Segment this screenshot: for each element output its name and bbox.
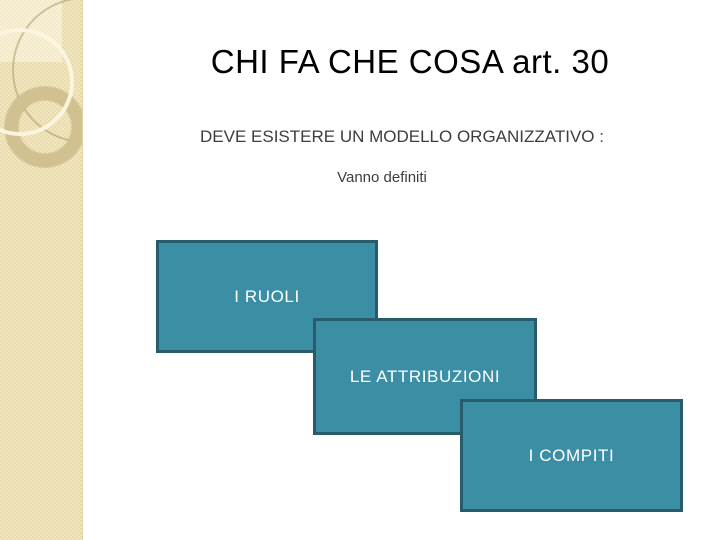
subheading-text: Vanno definiti: [200, 169, 564, 186]
presentation-slide: CHI FA CHE COSA art. 30 DEVE ESISTERE UN…: [0, 0, 720, 540]
box-compiti: I COMPITI: [460, 399, 683, 512]
box-compiti-label: I COMPITI: [529, 446, 615, 466]
box-attribuzioni-label: LE ATTRIBUZIONI: [350, 367, 500, 387]
statement-text: DEVE ESISTERE UN MODELLO ORGANIZZATIVO :: [200, 127, 604, 147]
sidebar-decoration-band: [0, 0, 83, 540]
box-ruoli-label: I RUOLI: [234, 287, 300, 307]
slide-title: CHI FA CHE COSA art. 30: [100, 43, 720, 81]
